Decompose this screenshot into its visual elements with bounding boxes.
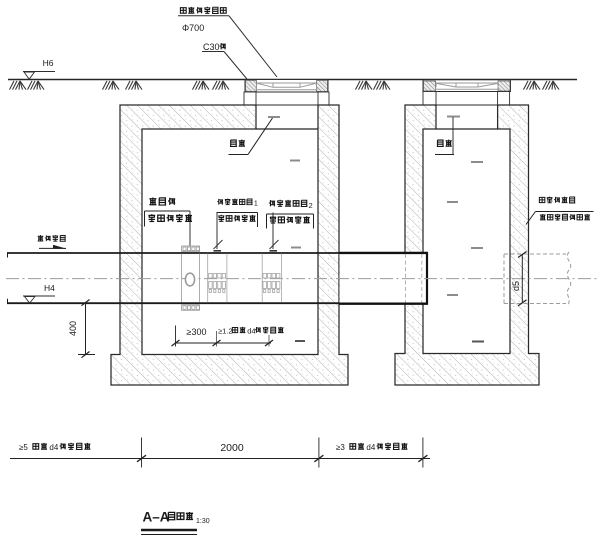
svg-text:1: 1 [254,199,258,208]
svg-text:1:30: 1:30 [196,518,210,525]
svg-text:d5: d5 [511,281,521,291]
svg-text:≥5: ≥5 [19,443,28,452]
svg-text:H4: H4 [44,283,55,293]
svg-text:d4: d4 [247,327,255,336]
svg-text:≥3: ≥3 [336,443,345,452]
svg-text:d4: d4 [366,443,375,452]
svg-text:C30: C30 [203,42,220,52]
svg-text:≥300: ≥300 [187,327,207,337]
svg-text:400: 400 [68,321,78,336]
svg-text:2000: 2000 [220,442,244,454]
svg-text:Φ700: Φ700 [182,23,204,33]
svg-text:≥1.2: ≥1.2 [218,327,233,336]
svg-text:d4: d4 [49,443,58,452]
svg-text:2: 2 [309,201,313,210]
svg-text:H6: H6 [43,58,54,68]
svg-text:A–A: A–A [143,510,170,525]
